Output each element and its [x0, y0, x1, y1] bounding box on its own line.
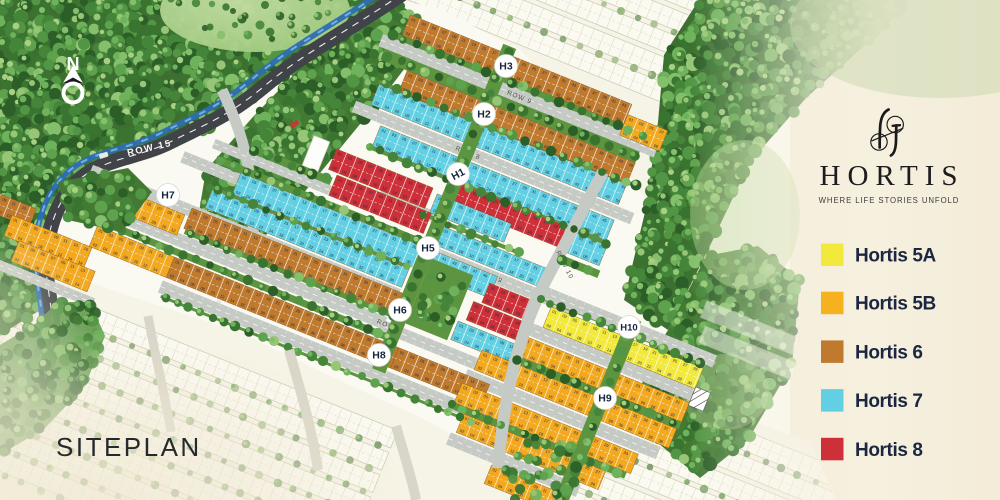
svg-text:Hortis 5A: Hortis 5A [855, 246, 937, 267]
svg-text:WHERE LIFE STORIES UNFOLD: WHERE LIFE STORIES UNFOLD [819, 196, 960, 205]
svg-text:H6: H6 [393, 305, 407, 317]
svg-text:H3: H3 [499, 61, 513, 73]
svg-text:H8: H8 [372, 350, 386, 362]
svg-text:Hortis 5B: Hortis 5B [855, 294, 936, 315]
svg-text:Hortis 6: Hortis 6 [855, 342, 923, 363]
svg-text:H5: H5 [421, 243, 435, 255]
svg-text:H2: H2 [477, 109, 491, 121]
svg-text:Hortis 8: Hortis 8 [855, 440, 923, 461]
svg-text:SITEPLAN: SITEPLAN [56, 432, 202, 462]
svg-text:H7: H7 [161, 190, 175, 202]
svg-text:H9: H9 [598, 393, 612, 405]
svg-text:Hortis 7: Hortis 7 [855, 391, 923, 412]
svg-text:HORTIS: HORTIS [820, 160, 965, 192]
svg-text:H10: H10 [620, 323, 637, 334]
